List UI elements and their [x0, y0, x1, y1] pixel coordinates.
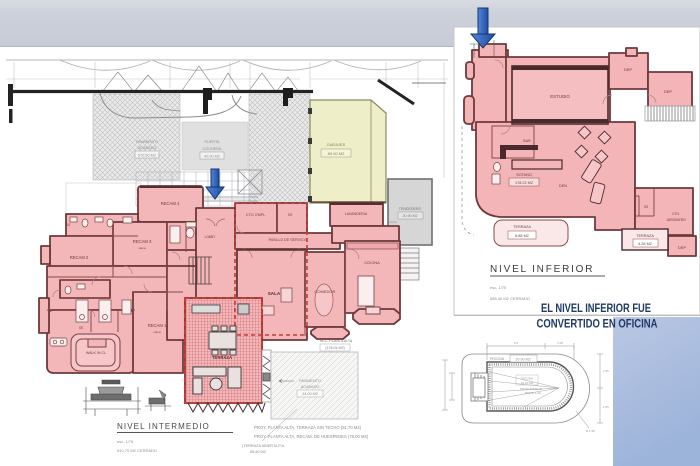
svg-text:RECAM 3: RECAM 3 [133, 239, 152, 244]
svg-text:ACABADO: ACABADO [138, 146, 157, 150]
svg-text:esc. 1/75: esc. 1/75 [117, 439, 134, 444]
svg-text:20.90 M2: 20.90 M2 [516, 358, 531, 362]
svg-text:PISCINA: PISCINA [490, 357, 505, 361]
svg-text:585.40 M2 CERRADO: 585.40 M2 CERRADO [490, 296, 530, 301]
svg-text:R 1.50: R 1.50 [586, 429, 595, 433]
svg-text:SS: SS [79, 326, 83, 330]
svg-text:COMEDOR: COMEDOR [315, 289, 336, 294]
svg-text:DEN: DEN [559, 184, 567, 188]
svg-text:ACABADO: ACABADO [301, 385, 320, 389]
svg-text:(TERRAZA ABIERTA P.A.: (TERRAZA ABIERTA P.A. [242, 444, 285, 448]
svg-text:EL NIVEL INFERIOR FUE: EL NIVEL INFERIOR FUE [541, 303, 651, 315]
svg-text:WALK IN CL: WALK IN CL [86, 351, 106, 355]
svg-text:PROY. PLANTA ALTA, RECAM. DE H: PROY. PLANTA ALTA, RECAM. DE HUESPEDES (… [254, 434, 369, 439]
svg-text:CTO.: CTO. [672, 212, 680, 216]
svg-text:ESTUDIO: ESTUDIO [550, 94, 570, 99]
svg-text:cama: cama [153, 330, 161, 334]
svg-text:esc. 1/75: esc. 1/75 [490, 285, 507, 290]
svg-text:4.28 M2: 4.28 M2 [638, 242, 652, 246]
svg-text:PAVIMENTO: PAVIMENTO [136, 140, 158, 144]
svg-text:DEP: DEP [664, 89, 673, 94]
svg-text:44.00 M2: 44.00 M2 [302, 392, 318, 396]
svg-text:DEP: DEP [678, 245, 687, 250]
svg-text:TERRAZA: TERRAZA [513, 225, 531, 229]
svg-text:SALA: SALA [268, 291, 281, 296]
svg-text:LOBBY: LOBBY [205, 235, 217, 239]
svg-text:LAVANDERIA: LAVANDERIA [345, 212, 368, 216]
svg-text:1.55: 1.55 [603, 369, 609, 373]
svg-text:SS: SS [66, 223, 70, 227]
svg-text:RECAM 4: RECAM 4 [161, 201, 180, 206]
svg-text:PROY. PLANTA ALTA, TERRAZA SIN: PROY. PLANTA ALTA, TERRAZA SIN TECHO (81… [254, 425, 362, 430]
svg-text:178.22 M2: 178.22 M2 [515, 181, 533, 185]
svg-text:PISCINA: PISCINA [521, 377, 533, 381]
svg-text:CONVERTIDO EN OFICINA: CONVERTIDO EN OFICINA [537, 319, 658, 331]
svg-text:1.06: 1.06 [557, 341, 563, 345]
svg-text:PROF. 1.20: PROF. 1.20 [525, 391, 541, 395]
svg-text:89.00 M2: 89.00 M2 [328, 151, 345, 156]
svg-text:JARDINERO: JARDINERO [666, 218, 686, 222]
svg-text:510.70 M2 CERRADO: 510.70 M2 CERRADO [117, 448, 157, 453]
svg-text:40.90 M2: 40.90 M2 [204, 155, 220, 159]
svg-text:CTO. EMPL.: CTO. EMPL. [246, 213, 266, 217]
svg-text:SS: SS [644, 205, 648, 209]
svg-text:COCINA: COCINA [364, 260, 380, 265]
svg-text:DEP: DEP [624, 67, 633, 72]
svg-text:COCHERA: COCHERA [203, 147, 222, 151]
svg-text:REC. PLANTA ALTA: REC. PLANTA ALTA [320, 339, 353, 343]
svg-text:NIVEL INTERMEDIO: NIVEL INTERMEDIO [117, 422, 210, 431]
svg-text:RECAM 2: RECAM 2 [70, 255, 89, 260]
svg-text:cama: cama [138, 246, 146, 250]
svg-text:PUERTA: PUERTA [204, 140, 220, 144]
svg-text:4.5: 4.5 [514, 341, 519, 345]
svg-text:570.50 M2: 570.50 M2 [138, 154, 156, 158]
svg-text:NIVEL INFERIOR: NIVEL INFERIOR [490, 264, 594, 275]
svg-text:8.88 M2: 8.88 M2 [515, 234, 529, 238]
svg-text:20.90 M2: 20.90 M2 [403, 214, 418, 218]
svg-text:GARAJES: GARAJES [327, 142, 346, 147]
svg-text:SS: SS [288, 213, 293, 217]
svg-text:1.55: 1.55 [603, 405, 609, 409]
svg-text:46.20 M2: 46.20 M2 [521, 381, 534, 385]
svg-text:58.90 M2: 58.90 M2 [250, 450, 266, 454]
svg-text:RECAM 1: RECAM 1 [148, 323, 167, 328]
svg-text:(178.04 M2): (178.04 M2) [325, 346, 344, 350]
svg-text:PAVIMENTO: PAVIMENTO [299, 379, 321, 383]
svg-text:TERRAZA: TERRAZA [212, 355, 232, 360]
svg-text:TERRAZA: TERRAZA [636, 234, 654, 238]
svg-text:PASILLO DE SERVICIO: PASILLO DE SERVICIO [269, 238, 308, 242]
svg-text:SOTANO: SOTANO [516, 173, 532, 177]
svg-text:BAR: BAR [523, 139, 531, 143]
svg-text:TENDEDERO: TENDEDERO [399, 207, 422, 211]
